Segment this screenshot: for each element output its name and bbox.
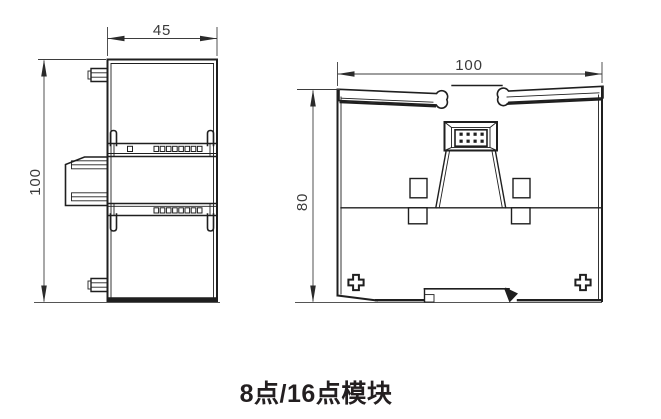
front-view: [338, 86, 604, 303]
vent-slot-right: [497, 86, 603, 105]
clip-window-upper-left: [410, 179, 427, 198]
mounting-clip-top: [88, 69, 108, 82]
dimension-label-front-height: 80: [294, 193, 311, 211]
terminal-strip-lower: [108, 204, 216, 232]
terminal-strip-upper: [108, 131, 216, 157]
mounting-clip-bottom: [88, 279, 108, 292]
clip-window-upper-right: [513, 179, 530, 198]
dimension-label-front-width: 100: [455, 57, 482, 74]
side-view: [66, 60, 218, 302]
figure-caption: 8点/16点模块: [0, 374, 632, 410]
expansion-connector-side: [66, 157, 108, 206]
dimension-label-side-height: 100: [27, 168, 44, 195]
din-rail-latch: [425, 288, 519, 303]
dimension-side-width: 45: [108, 22, 218, 56]
bus-connector: [436, 122, 506, 208]
technical-drawing-canvas: 45 100 100 80: [0, 0, 661, 419]
clip-window-lower-right: [512, 208, 531, 224]
screw-cross-icon-left: [348, 275, 363, 290]
module-dimension-drawing: 45 100 100 80 8点/16点模块: [0, 0, 661, 419]
dimension-side-height: 100: [27, 60, 220, 303]
screw-cross-icon-right: [575, 275, 590, 290]
clip-window-lower-left: [409, 208, 428, 224]
dimension-front-width: 100: [338, 57, 603, 86]
side-body-outline: [108, 60, 218, 302]
vent-slot-left: [339, 89, 448, 108]
dimension-label-side-width: 45: [153, 22, 171, 39]
